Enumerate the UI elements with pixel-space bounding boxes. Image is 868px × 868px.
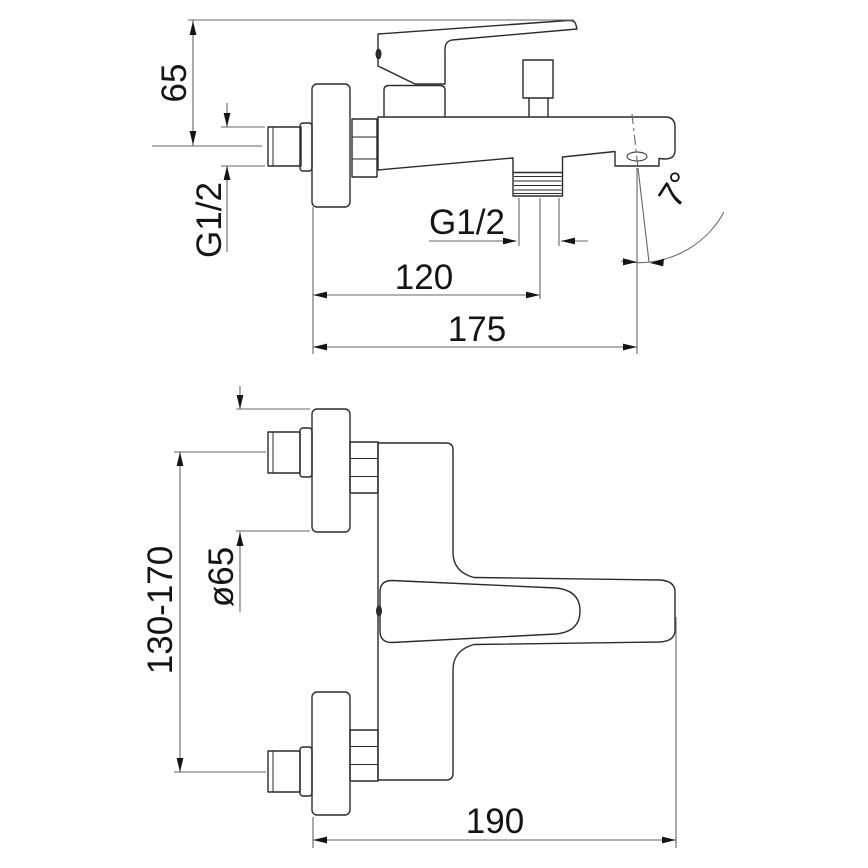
- cartridge-cap: [384, 86, 445, 118]
- hex-nut-upper: [350, 442, 378, 493]
- dim-label-130-170: 130-170: [141, 546, 180, 674]
- dim-label-120: 120: [395, 258, 453, 297]
- dim-label-o65: ø65: [202, 547, 241, 607]
- nipple-collar-lower: [300, 747, 312, 796]
- nipple-collar-upper: [300, 428, 312, 477]
- thread-ridges: [514, 177, 562, 194]
- wall-flange: [312, 84, 350, 207]
- diverter-knob: [523, 60, 553, 98]
- spout-axis-centerline: [632, 114, 638, 168]
- faucet-body: [378, 117, 675, 173]
- dim-label-7deg: 7°: [651, 165, 702, 214]
- drawing-canvas: 65 G1/2 G1/2 120 175 7°: [0, 0, 868, 868]
- spout-axis-line: [638, 168, 649, 262]
- dim-label-g12-inlet: G1/2: [190, 182, 229, 258]
- hex-nut-lower: [350, 730, 378, 781]
- side-view: [268, 20, 675, 207]
- faucet-body-plan: [378, 443, 675, 780]
- plan-view-dimensions: ø65 130-170 190: [141, 386, 676, 848]
- dim-label-175: 175: [448, 310, 506, 349]
- hex-nut: [352, 119, 377, 177]
- dim-label-190: 190: [466, 802, 524, 841]
- nipple-collar: [300, 123, 312, 171]
- dim-label-65: 65: [155, 64, 194, 103]
- wall-flange-upper: [312, 409, 350, 532]
- lever-handle: [378, 20, 577, 84]
- hex-nut-facets: [352, 137, 377, 159]
- diverter-stem: [529, 98, 548, 117]
- side-view-dimensions: 65 G1/2 G1/2 120 175 7°: [152, 20, 724, 354]
- ext-lines-g12-outlet: [519, 198, 559, 246]
- hex-nut-upper-facets: [350, 459, 378, 477]
- technical-drawing: 65 G1/2 G1/2 120 175 7°: [0, 0, 868, 868]
- lever-handle-plan: [380, 581, 580, 643]
- wall-flange-lower: [312, 692, 350, 815]
- plan-view: [268, 409, 675, 815]
- dim-label-g12-outlet: G1/2: [429, 203, 505, 242]
- set-screw: [376, 49, 382, 60]
- hex-nut-lower-facets: [350, 747, 378, 765]
- set-screw-plan: [376, 606, 382, 617]
- ext-lines-centers: [174, 452, 266, 772]
